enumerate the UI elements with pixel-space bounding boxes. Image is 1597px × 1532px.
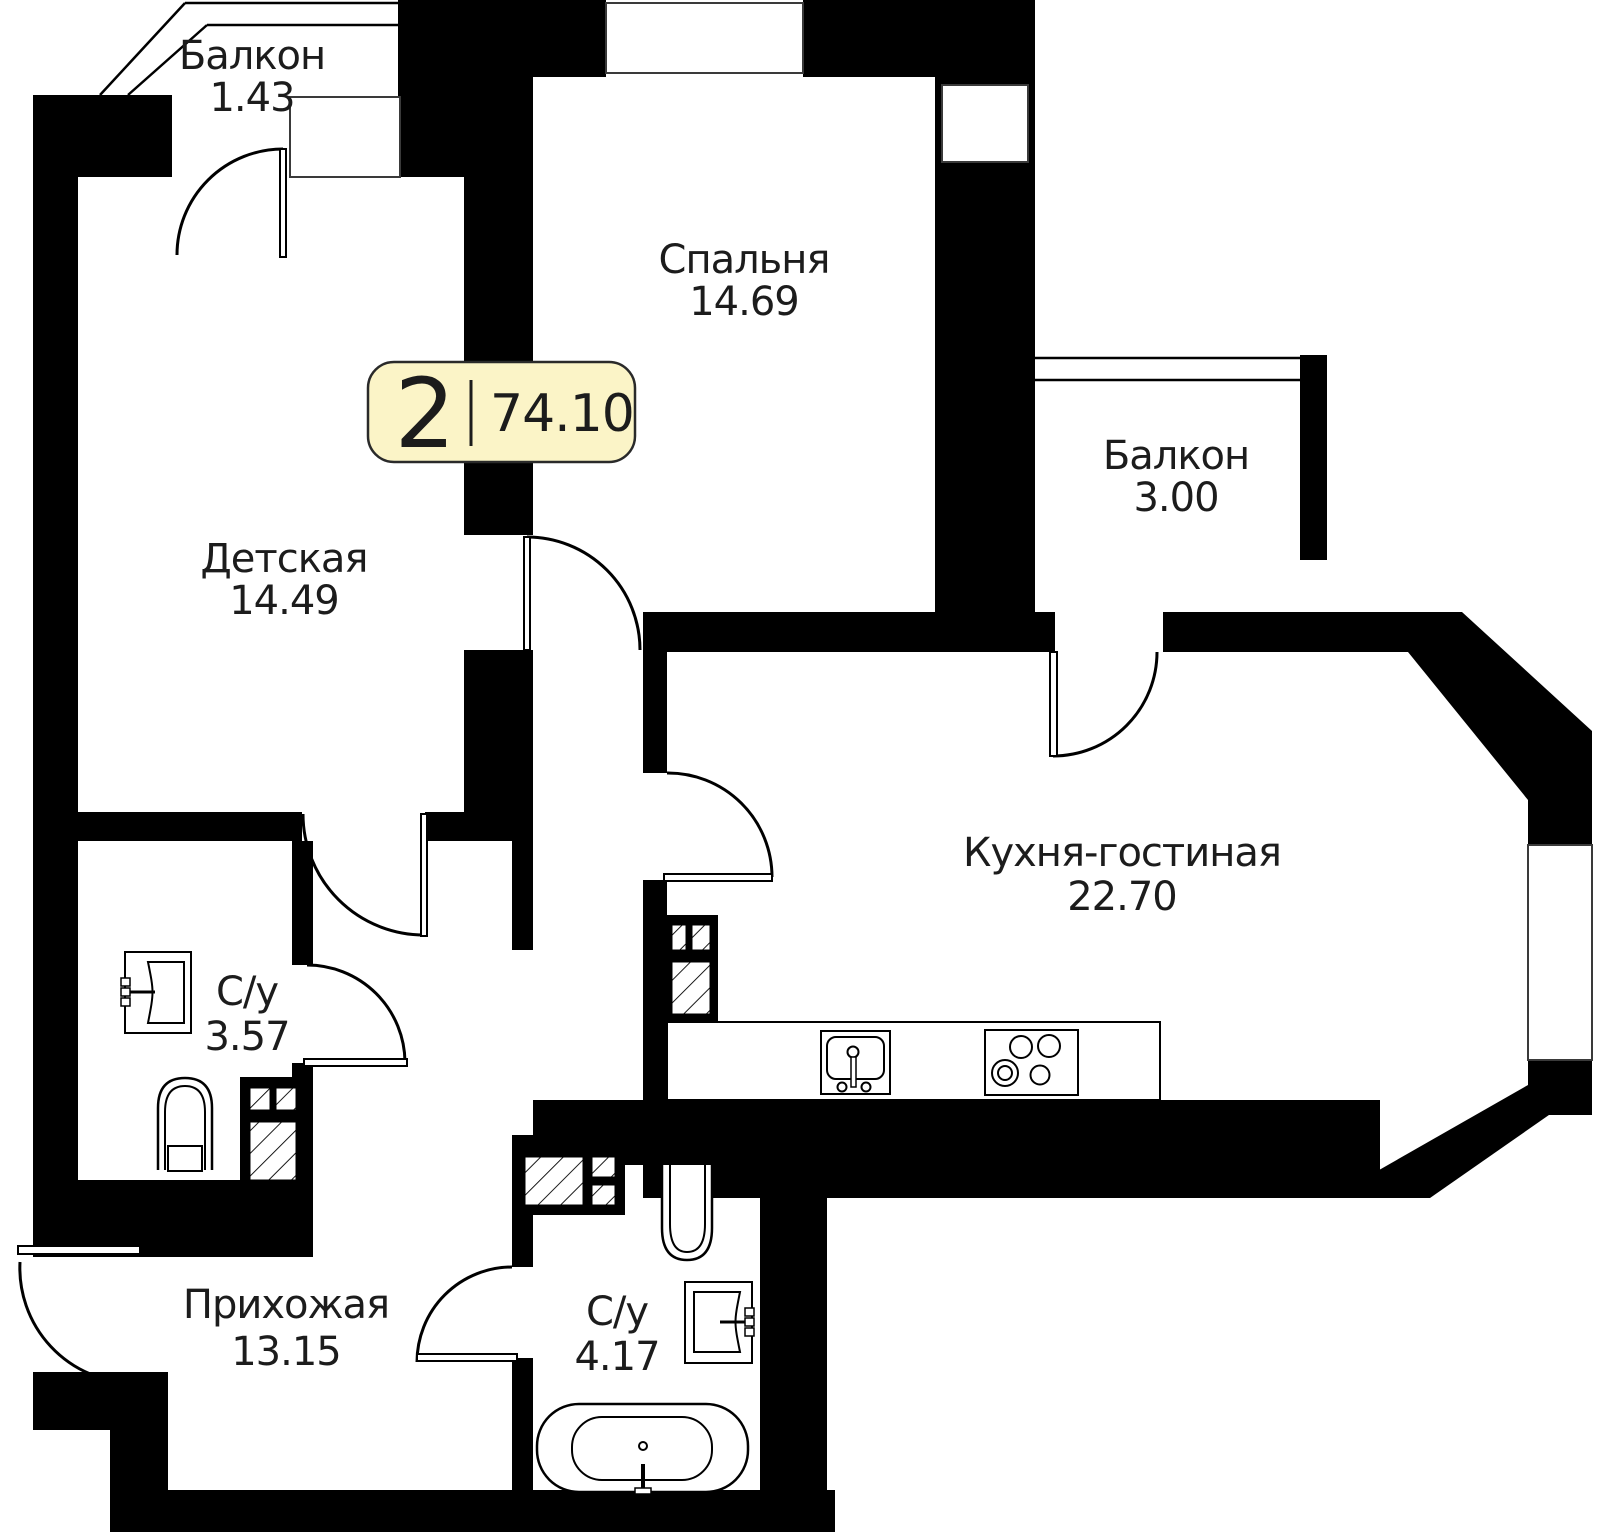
door-arc-icon <box>303 814 424 935</box>
vent-shaft-hatch-icon <box>692 925 710 950</box>
vent-shaft-hatch-icon <box>672 925 686 950</box>
area-badge: 2 74.10 <box>368 358 635 470</box>
door-arc-icon <box>417 1267 512 1362</box>
room-area-hallway: 13.15 <box>231 1329 341 1375</box>
window-icon <box>290 97 400 177</box>
room-label-balcony-top: Балкон <box>179 33 325 79</box>
vent-shaft-hatch-icon <box>672 962 710 1014</box>
stove-icon <box>985 1030 1078 1095</box>
sink-icon <box>121 952 191 1033</box>
door-arc-icon <box>1053 652 1157 756</box>
door-arc-icon <box>527 537 640 650</box>
door-arc-icon <box>20 1262 133 1383</box>
bath-small-fixtures <box>121 952 212 1171</box>
door-arc-icon <box>667 773 772 877</box>
toilet-icon <box>662 1165 712 1260</box>
door-arc-icon <box>177 149 283 255</box>
room-area-balcony-top: 1.43 <box>209 75 294 121</box>
bathtub-icon <box>537 1404 748 1494</box>
window-icon <box>1528 845 1592 1060</box>
door-arc-icon <box>307 965 405 1062</box>
vent-shaft-hatch-icon <box>276 1088 296 1110</box>
room-area-bedroom: 14.69 <box>689 279 799 325</box>
room-label-bath-big: С/у <box>586 1289 648 1335</box>
room-area-bath-big: 4.17 <box>574 1334 659 1380</box>
floor-plan-svg: Балкон 1.43 Спальня 14.69 Балкон 3.00 Де… <box>0 0 1597 1532</box>
window-icon <box>942 85 1028 162</box>
window-icon <box>606 3 803 73</box>
room-label-hallway: Прихожая <box>183 1282 389 1328</box>
vent-shaft-hatch-icon <box>250 1122 296 1180</box>
balcony-right-outline <box>1035 358 1300 380</box>
vent-shaft-hatch-icon <box>592 1185 615 1205</box>
vent-shaft-hatch-icon <box>250 1088 270 1110</box>
kitchen-fixtures <box>667 1022 1160 1100</box>
kitchen-sink-icon <box>821 1031 890 1094</box>
vent-shaft-hatch-icon <box>592 1157 615 1177</box>
vent-shaft-hatch-icon <box>525 1157 583 1205</box>
room-area-kids-room: 14.49 <box>229 578 339 624</box>
room-label-bath-small: С/у <box>216 969 278 1015</box>
badge-room-count: 2 <box>394 358 453 470</box>
kitchen-counter <box>667 1022 1160 1100</box>
floor-plan: Балкон 1.43 Спальня 14.69 Балкон 3.00 Де… <box>0 0 1597 1532</box>
room-area-balcony-right: 3.00 <box>1133 475 1218 521</box>
room-label-kitchen: Кухня-гостиная <box>963 830 1281 876</box>
room-label-balcony-right: Балкон <box>1103 433 1249 479</box>
room-area-kitchen: 22.70 <box>1067 874 1177 920</box>
room-label-kids-room: Детская <box>201 536 368 582</box>
room-area-bath-small: 3.57 <box>204 1014 289 1060</box>
toilet-icon <box>158 1078 212 1171</box>
sink-icon <box>685 1282 754 1363</box>
badge-total-area: 74.10 <box>490 384 634 444</box>
room-label-bedroom: Спальня <box>659 237 830 283</box>
